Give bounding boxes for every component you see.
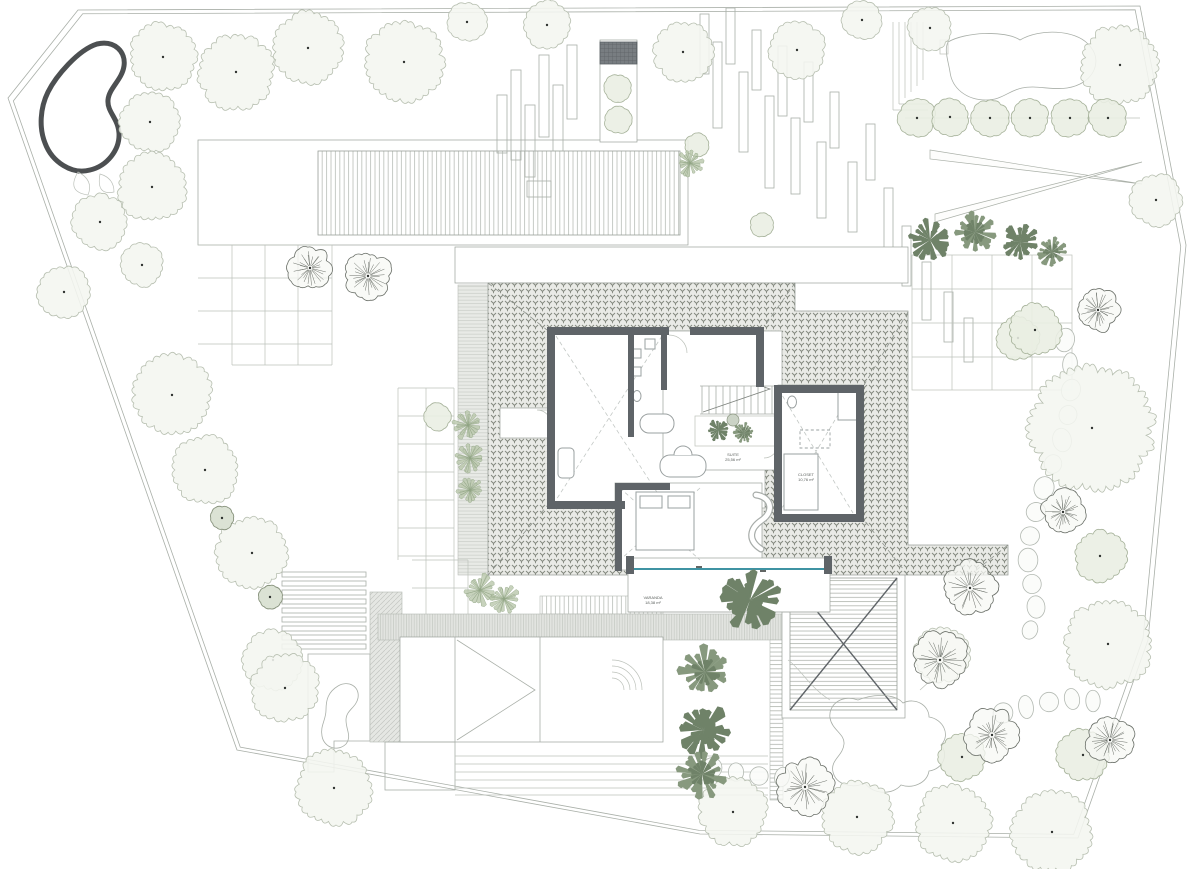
desk xyxy=(660,455,706,477)
toilet-upper xyxy=(633,391,641,402)
pergola-louvered-roof xyxy=(318,151,680,235)
bathtub xyxy=(640,414,674,433)
upper-walkway xyxy=(455,247,908,283)
garden-steps-left xyxy=(282,572,366,649)
garage-building xyxy=(385,637,663,790)
entry-porch xyxy=(500,408,551,438)
suite-area: 25,56 m² xyxy=(725,457,741,462)
pool xyxy=(41,43,124,195)
vanity-suite xyxy=(838,392,858,420)
driveway-band xyxy=(378,614,783,640)
toilet-suite xyxy=(788,396,797,408)
site-plan-drawing: SUITE 25,56 m² CLOSET 10,76 m² VARANDA 1… xyxy=(0,0,1200,869)
tapered-path-wedges xyxy=(930,150,1142,222)
closet-mat xyxy=(784,454,818,510)
varanda-area: 18,38 m² xyxy=(645,600,661,605)
pergola-building xyxy=(198,140,688,245)
closet-area: 10,76 m² xyxy=(798,477,814,482)
washer xyxy=(645,339,655,349)
pool-leaf-ornament xyxy=(74,172,114,195)
terrace-pond xyxy=(322,684,359,749)
planter-grate xyxy=(600,42,637,64)
organic-garden-bed xyxy=(940,32,1096,100)
sofa xyxy=(558,448,574,478)
main-house xyxy=(488,283,1008,612)
